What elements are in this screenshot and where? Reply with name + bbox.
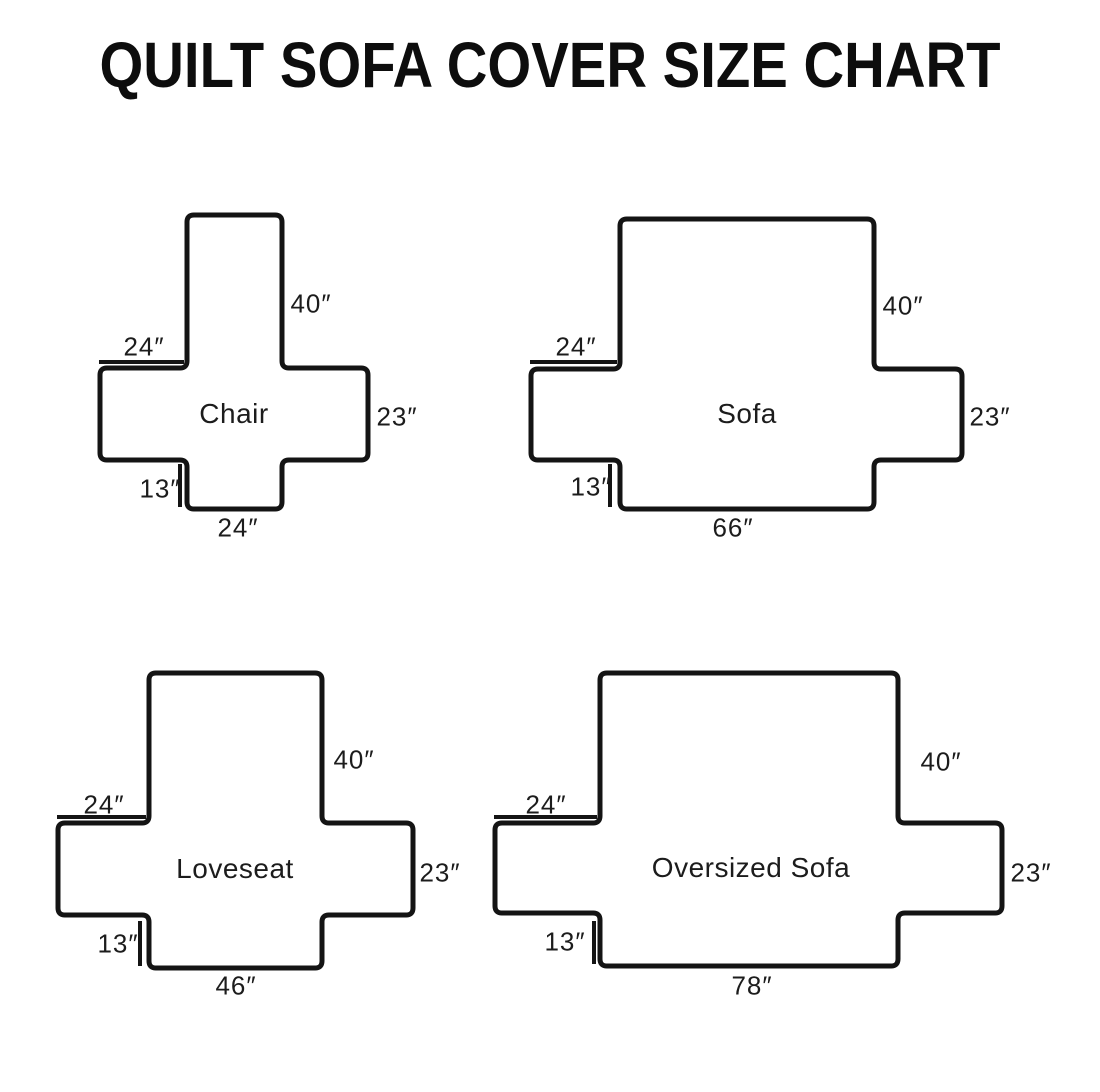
chair-front-drop-label: 13″ [139, 474, 180, 505]
chair-arm-length-label: 24″ [123, 332, 164, 363]
sofa-side-height-label: 23″ [969, 402, 1010, 433]
oversized-sofa-bottom-width-label: 78″ [731, 971, 772, 1002]
sofa-label: Sofa [717, 398, 777, 430]
loveseat-side-height-label: 23″ [419, 858, 460, 889]
oversized-sofa-back-height-label: 40″ [920, 747, 961, 778]
loveseat-outline [58, 673, 413, 968]
chair-back-height-label: 40″ [290, 289, 331, 320]
loveseat-front-drop-label: 13″ [97, 929, 138, 960]
chair-bottom-width-label: 24″ [217, 513, 258, 544]
sofa-arm-length-label: 24″ [555, 332, 596, 363]
oversized-sofa-arm-length-label: 24″ [525, 790, 566, 821]
loveseat-bottom-width-label: 46″ [215, 971, 256, 1002]
oversized-sofa-outline [495, 673, 1002, 966]
oversized-sofa-side-height-label: 23″ [1010, 858, 1051, 889]
loveseat-back-height-label: 40″ [333, 745, 374, 776]
size-chart-page: QUILT SOFA COVER SIZE CHART Chair 40″ 24… [0, 0, 1100, 1092]
loveseat-label: Loveseat [176, 853, 294, 885]
oversized-sofa-front-drop-label: 13″ [544, 927, 585, 958]
sofa-front-drop-label: 13″ [570, 472, 611, 503]
loveseat-arm-length-label: 24″ [83, 790, 124, 821]
sofa-back-height-label: 40″ [882, 291, 923, 322]
sofa-bottom-width-label: 66″ [712, 513, 753, 544]
oversized-sofa-label: Oversized Sofa [652, 852, 850, 884]
chair-side-height-label: 23″ [376, 402, 417, 433]
chair-label: Chair [199, 398, 268, 430]
